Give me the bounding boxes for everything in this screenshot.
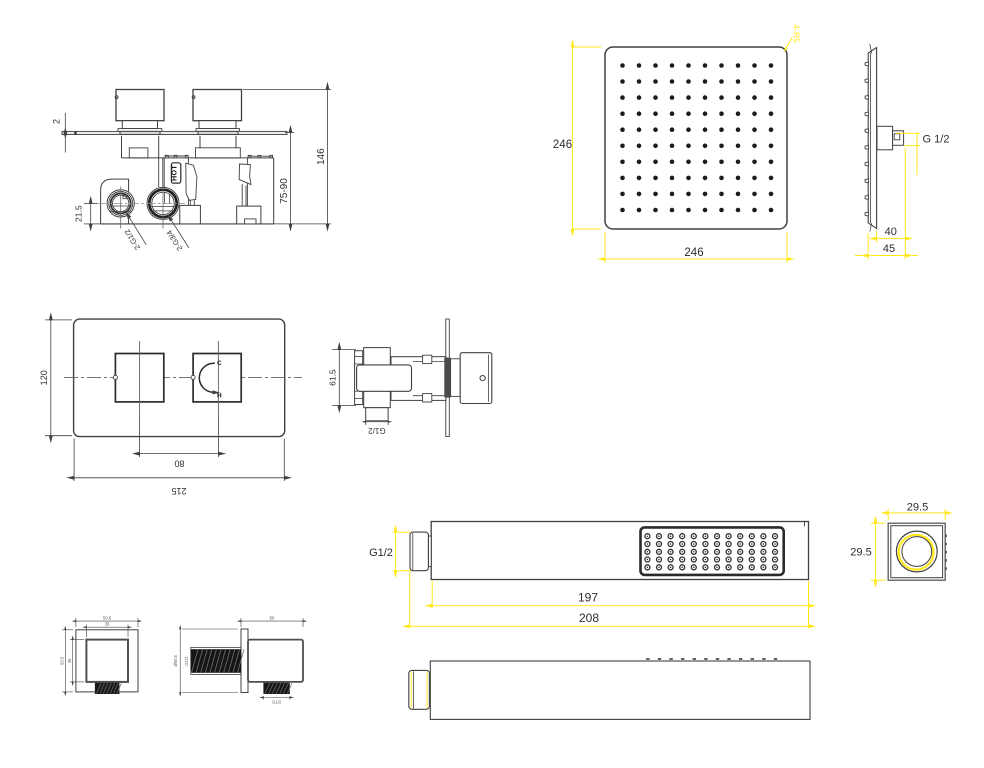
svg-text:2-G1/2: 2-G1/2: [122, 228, 142, 252]
svg-text:21.5: 21.5: [74, 205, 84, 222]
svg-text:208: 208: [579, 611, 599, 625]
svg-text:2: 2: [52, 119, 62, 124]
svg-text:50.5: 50.5: [60, 656, 65, 665]
svg-text:120: 120: [39, 370, 49, 385]
svg-text:35: 35: [105, 622, 110, 627]
svg-text:246: 246: [684, 247, 703, 259]
svg-text:G1/2: G1/2: [369, 547, 393, 559]
svg-text:246: 246: [553, 139, 572, 151]
svg-text:G1/2: G1/2: [272, 700, 282, 705]
svg-text:C: C: [217, 360, 222, 367]
svg-text:G 1/2: G 1/2: [923, 133, 950, 145]
svg-text:2-G3/4: 2-G3/4: [165, 229, 185, 253]
svg-text:215: 215: [171, 486, 186, 496]
svg-text:50.5: 50.5: [103, 615, 112, 620]
svg-text:29.5: 29.5: [850, 547, 871, 559]
svg-text:29.5: 29.5: [907, 502, 928, 514]
svg-text:50: 50: [270, 615, 275, 620]
svg-text:Ø50.5: Ø50.5: [173, 654, 178, 666]
svg-text:45: 45: [883, 243, 895, 255]
svg-text:G1/2: G1/2: [184, 656, 189, 666]
svg-text:4-R5: 4-R5: [792, 24, 802, 43]
svg-text:146: 146: [316, 148, 327, 165]
svg-text:H: H: [217, 392, 222, 399]
svg-text:197: 197: [578, 591, 598, 605]
svg-text:G1/2: G1/2: [368, 426, 386, 435]
svg-text:75-90: 75-90: [279, 178, 290, 204]
svg-text:80: 80: [174, 459, 184, 469]
svg-text:35: 35: [67, 658, 72, 663]
svg-text:61.5: 61.5: [328, 369, 338, 386]
svg-text:HOT: HOT: [170, 165, 179, 181]
svg-text:40: 40: [885, 226, 897, 238]
